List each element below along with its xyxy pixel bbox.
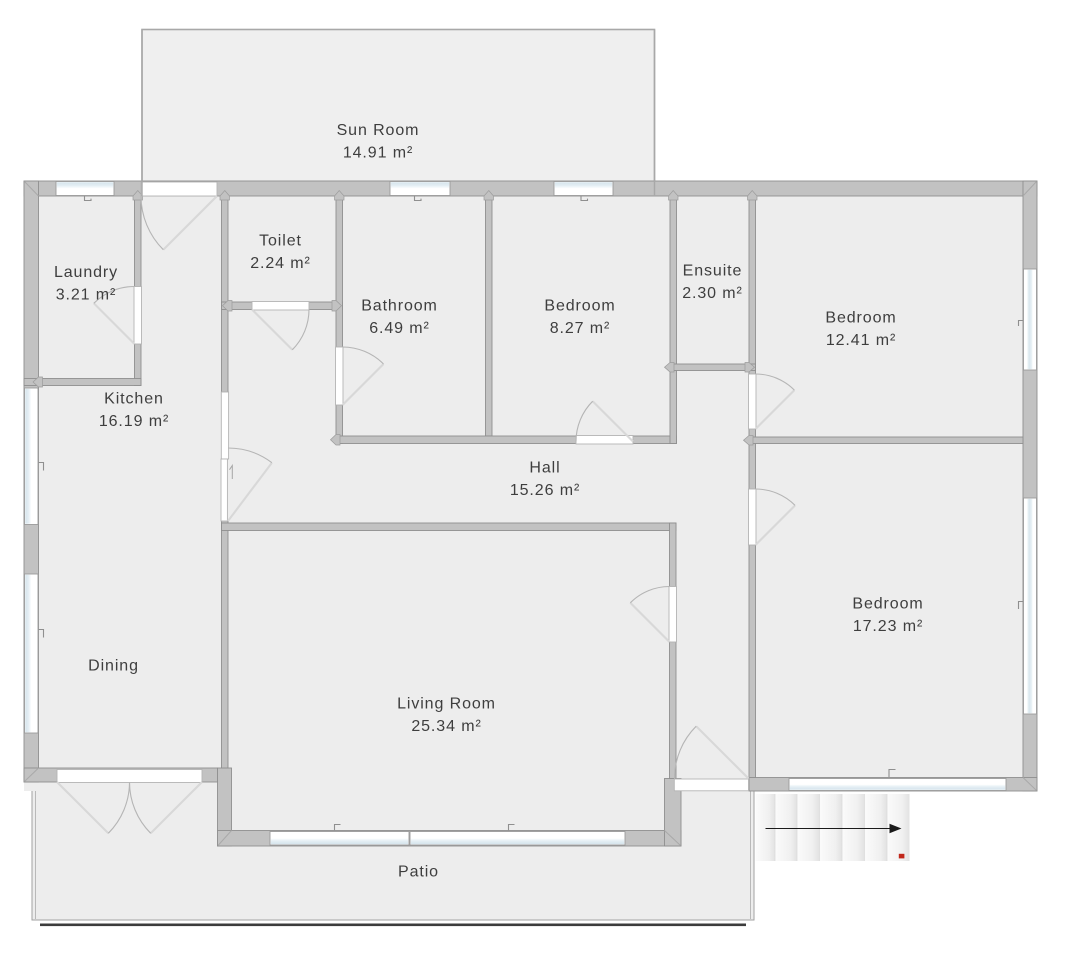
svg-text:Bedroom: Bedroom bbox=[852, 596, 923, 613]
svg-text:Living Room: Living Room bbox=[397, 696, 496, 713]
svg-text:2.30 m²: 2.30 m² bbox=[682, 285, 743, 302]
svg-text:Hall: Hall bbox=[529, 460, 560, 477]
svg-text:6.49 m²: 6.49 m² bbox=[369, 320, 430, 337]
svg-text:Ensuite: Ensuite bbox=[683, 263, 743, 280]
svg-text:Bedroom: Bedroom bbox=[825, 310, 896, 327]
svg-text:Dining: Dining bbox=[88, 658, 139, 675]
svg-text:15.26 m²: 15.26 m² bbox=[510, 482, 580, 499]
svg-text:25.34 m²: 25.34 m² bbox=[411, 718, 481, 735]
svg-text:Toilet: Toilet bbox=[259, 233, 302, 250]
svg-text:Sun Room: Sun Room bbox=[337, 122, 420, 139]
svg-text:2.24 m²: 2.24 m² bbox=[250, 255, 311, 272]
svg-text:Bathroom: Bathroom bbox=[361, 298, 438, 315]
svg-text:8.27 m²: 8.27 m² bbox=[550, 320, 611, 337]
svg-text:16.19 m²: 16.19 m² bbox=[99, 413, 169, 430]
svg-text:Laundry: Laundry bbox=[54, 264, 118, 281]
svg-text:14.91 m²: 14.91 m² bbox=[343, 145, 413, 162]
svg-text:Kitchen: Kitchen bbox=[104, 391, 164, 408]
svg-text:Bedroom: Bedroom bbox=[544, 298, 615, 315]
svg-text:12.41 m²: 12.41 m² bbox=[826, 332, 896, 349]
svg-text:3.21 m²: 3.21 m² bbox=[56, 287, 117, 304]
svg-text:Patio: Patio bbox=[398, 864, 439, 881]
svg-text:17.23 m²: 17.23 m² bbox=[853, 618, 923, 635]
